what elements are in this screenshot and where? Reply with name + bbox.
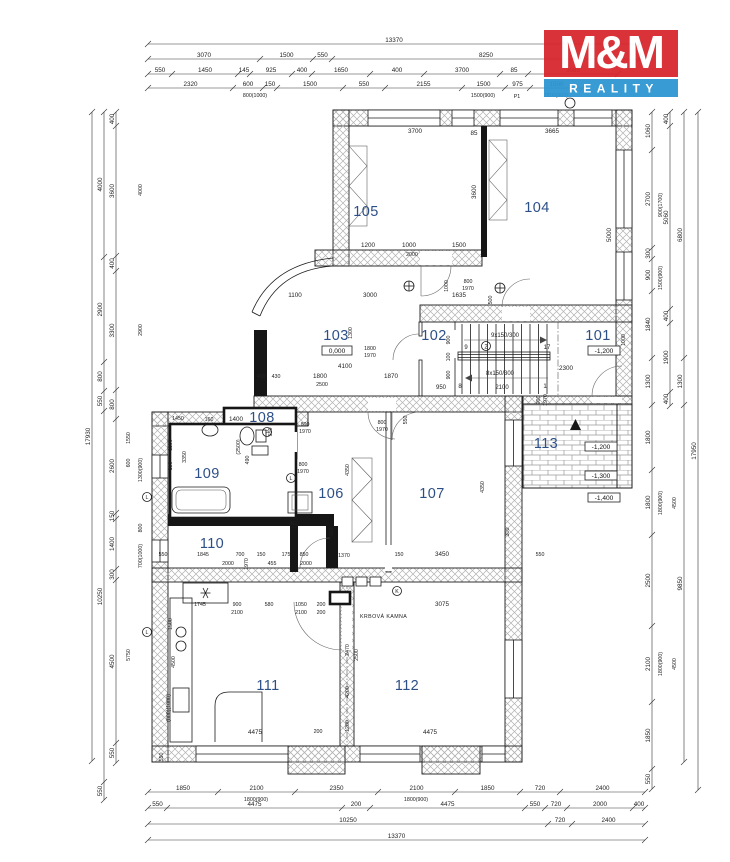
- marker-k: K: [395, 589, 399, 595]
- elevation-0000: 0,000: [329, 348, 346, 355]
- dim-chain-bottom-3: 102507202400: [145, 817, 648, 827]
- interior-dim: 4200: [345, 686, 351, 698]
- dim-label: 2900: [97, 302, 104, 317]
- interior-dim: 1970: [543, 394, 549, 406]
- door-gap: [385, 545, 392, 571]
- wardrobe-icon: [352, 458, 372, 542]
- dim-label: 1840: [645, 317, 652, 332]
- dim-sub-label: 1300(900): [138, 458, 144, 482]
- dim-label: 550: [109, 747, 116, 758]
- interior-dim: 455: [268, 561, 277, 567]
- dim-label: 400: [663, 113, 670, 124]
- interior-dim: 4350: [345, 464, 351, 476]
- interior-dim: 700: [236, 552, 245, 558]
- room-label-103: 103: [323, 328, 348, 344]
- interior-dim: 150: [257, 552, 266, 558]
- dim-label: 2400: [595, 785, 610, 792]
- interior-dim: 1970: [297, 469, 309, 475]
- interior-dim: 5000: [606, 228, 613, 243]
- dim-label: 2600: [109, 459, 116, 474]
- dim-label: 1400: [109, 537, 116, 552]
- dim-label: 1800: [645, 495, 652, 510]
- interior-dim: 100: [446, 353, 452, 362]
- kitchen-sink-icon: [173, 688, 189, 712]
- interior-dim: 550: [268, 428, 274, 437]
- interior-dim: 1970: [462, 286, 474, 292]
- dim-label: 10250: [97, 587, 104, 605]
- interior-dim: 1800: [364, 346, 376, 352]
- interior-dim: 1970: [364, 353, 376, 359]
- benchmark-icon: [495, 283, 505, 293]
- dim-label: 17930: [85, 427, 92, 445]
- interior-dim: 550: [403, 416, 409, 425]
- dim-label: 1300: [645, 374, 652, 389]
- dim-label: 1850: [645, 728, 652, 743]
- interior-dim: 1100: [168, 439, 174, 450]
- dim-sub-label: 700(1000): [138, 544, 144, 568]
- interior-dim: 4475: [248, 729, 263, 736]
- interior-dim: 2300: [559, 365, 574, 372]
- dim-label: 1060: [645, 124, 652, 139]
- stair-width2: 950: [436, 385, 447, 391]
- interior-dim: (800)(1000): [166, 694, 172, 722]
- elevation-1200b: -1,200: [592, 444, 611, 451]
- dim-label: 10250: [339, 817, 357, 824]
- room-label-104: 104: [524, 200, 549, 216]
- room-label-102: 102: [421, 328, 446, 344]
- marker-k2: K2: [291, 521, 297, 527]
- dim-label: 550: [152, 801, 163, 808]
- dim-label: 13370: [388, 833, 406, 840]
- interior-dim: 160: [205, 417, 214, 423]
- stair-run-down: 8x150/300: [486, 371, 515, 377]
- interior-dim: 800: [301, 422, 310, 428]
- dim-sub-label: 1500(900): [471, 93, 495, 99]
- room-label-111: 111: [256, 678, 279, 694]
- interior-dim: 3600: [471, 185, 478, 200]
- interior-dim: 400: [257, 374, 266, 380]
- interior-dim: 800: [464, 279, 473, 285]
- interior-dim: 300: [505, 528, 511, 537]
- dim-label: 720: [535, 785, 546, 792]
- elevation-1300: -1,300: [592, 473, 611, 480]
- dim-label: 1500: [303, 81, 318, 88]
- dim-label: 550: [317, 52, 328, 59]
- interior-dim: 1800: [313, 373, 328, 380]
- dim-label: 720: [551, 801, 562, 808]
- marker-l1: L: [146, 495, 149, 501]
- interior-dim: 1370: [338, 553, 350, 559]
- dim-label: 1850: [480, 785, 495, 792]
- interior-dim: 900: [446, 336, 452, 345]
- dim-label: 400: [663, 310, 670, 321]
- dim-sub-label: 600: [126, 459, 132, 468]
- dim-label: 85: [510, 67, 518, 74]
- interior-dim: 3075: [435, 601, 450, 608]
- interior-dim: 4475: [423, 729, 438, 736]
- interior-dim: 2500: [354, 649, 360, 661]
- dim-label: 2700: [645, 192, 652, 207]
- interior-dim: 1000: [444, 280, 450, 292]
- interior-dim: 1200: [345, 720, 351, 732]
- dim-sub-label: 1800(900): [244, 797, 268, 803]
- marker-l2: L: [146, 630, 149, 636]
- dim-sub-label: 1800(900): [404, 797, 428, 803]
- dim-label: 17950: [691, 442, 698, 460]
- dim-label: 13370: [385, 37, 403, 44]
- interior-dim: 2000: [222, 561, 234, 567]
- interior-dim: 150: [168, 462, 174, 471]
- dim-label: 550: [97, 785, 104, 796]
- interior-dim: 85: [470, 130, 478, 137]
- dim-sub-label: 800(1000): [243, 93, 267, 99]
- logo-subtitle: REALITY: [569, 82, 659, 96]
- dim-label: 4000: [97, 177, 104, 192]
- interior-dim: 1000: [402, 242, 417, 249]
- dim-label: 800: [109, 399, 116, 410]
- interior-dim: (2500): [236, 439, 242, 455]
- dim-label: 1500: [279, 52, 294, 59]
- interior-dim: 1000: [621, 334, 627, 346]
- dim-label: 2500: [645, 573, 652, 588]
- interior-dim: 430: [272, 374, 281, 380]
- dim-label: 400: [109, 258, 116, 269]
- dim-label: 150: [109, 510, 116, 521]
- room-label-110: 110: [200, 536, 224, 552]
- dim-label: 1900: [663, 350, 670, 365]
- interior-dim: 800: [299, 462, 308, 468]
- dim-label: 1450: [198, 67, 213, 74]
- dim-label: 2350: [329, 785, 344, 792]
- dim-label: 3700: [455, 67, 470, 74]
- dim-label: 2100: [409, 785, 424, 792]
- dim-label: 1850: [176, 785, 191, 792]
- interior-dim: 4500: [171, 656, 177, 668]
- interior-dim: 2500: [316, 382, 328, 388]
- interior-dim: 500: [488, 296, 494, 305]
- dim-label: 6800: [677, 228, 684, 243]
- dim-label: 4475: [440, 801, 455, 808]
- dim-label: 3070: [197, 52, 212, 59]
- interior-dim: 1450: [172, 416, 184, 422]
- room-label-105: 105: [353, 204, 378, 220]
- dim-label: 1650: [334, 67, 349, 74]
- fireplace-stove: [330, 592, 350, 604]
- dim-label: 600: [243, 81, 254, 88]
- elevation-1200: -1,200: [595, 348, 614, 355]
- dim-label: 150: [265, 81, 276, 88]
- dim-sub-label: 4500: [672, 658, 678, 670]
- interior-dim: 4100: [338, 363, 353, 370]
- interior-dim: 2100: [295, 610, 307, 616]
- dim-sub-label: P1: [514, 94, 521, 100]
- interior-dim: 1050: [295, 602, 307, 608]
- dim-label: 925: [266, 67, 277, 74]
- interior-dim: 1970: [244, 558, 250, 570]
- interior-dim: 1845: [197, 552, 209, 558]
- interior-dim: 2470: [345, 644, 351, 656]
- dim-sub-label: 1550: [126, 432, 132, 444]
- interior-dim: 800: [378, 420, 387, 426]
- interior-dim: 3700: [408, 128, 423, 135]
- benchmark-icon: [404, 281, 414, 291]
- interior-dim: 3350: [182, 451, 188, 463]
- interior-dim: 580: [265, 602, 274, 608]
- dim-label: 550: [359, 81, 370, 88]
- dim-label: 3300: [109, 323, 116, 338]
- stair-run-up: 9x150/300: [491, 333, 520, 339]
- dim-label: 2100: [249, 785, 264, 792]
- room-label-112: 112: [395, 678, 419, 694]
- floor-plan: 13370 307015005508250 550145014592540016…: [0, 0, 730, 862]
- bay-window: [252, 258, 333, 316]
- dim-chain-top-4: 23206001501500550215515009751500: [145, 81, 586, 91]
- interior-dim: 2000: [406, 252, 418, 258]
- dim-label: 2000: [593, 801, 608, 808]
- dim-sub-label: 4500: [672, 497, 678, 509]
- dim-sub-label: 1500(900): [658, 266, 664, 290]
- dim-label: 2400: [601, 817, 616, 824]
- dim-chain-right-3: 680013009850: [677, 109, 687, 765]
- interior-dim: 1635: [452, 292, 467, 299]
- dim-label: 550: [645, 773, 652, 784]
- elevation-1400: -1,400: [595, 495, 614, 502]
- dim-label: 550: [97, 395, 104, 406]
- staircase: 2 9x150/300 8x150/300 9 17 8 1 2100 950: [436, 324, 551, 394]
- dim-label: 4500: [109, 654, 116, 669]
- dim-chain-right-4: 17950: [691, 109, 701, 793]
- interior-dim: 550: [536, 552, 545, 558]
- dim-chain-right-1: 1060270030090018401300180018002500210018…: [645, 109, 655, 792]
- dim-label: 300: [645, 248, 652, 259]
- interior-dim: 3665: [545, 128, 560, 135]
- dim-label: 3600: [109, 184, 116, 199]
- dim-label: 550: [155, 67, 166, 74]
- dim-chain-right-2: 40050604001900400: [663, 109, 673, 409]
- dim-label: 400: [392, 67, 403, 74]
- dim-chain-left-2: 4000290080055010250550: [97, 109, 107, 803]
- stair-step-start: 9: [464, 345, 468, 351]
- dim-label: 975: [512, 81, 523, 88]
- dim-label: 2320: [183, 81, 198, 88]
- interior-dim: 1500: [452, 242, 467, 249]
- interior-dim: 2000: [300, 561, 312, 567]
- interior-dim: 1100: [288, 292, 302, 299]
- interior-dim: 1200: [361, 242, 376, 249]
- dim-label: 400: [109, 113, 116, 124]
- fireplace-label: KRBOVÁ KAMNA: [360, 613, 407, 620]
- dim-label: 400: [634, 801, 645, 808]
- dim-sub-label: 1800(900): [658, 491, 664, 515]
- room-label-107: 107: [419, 486, 444, 502]
- dim-label: 1800: [645, 430, 652, 445]
- interior-dim: 1300: [348, 327, 354, 339]
- interior-dim: 3000: [363, 292, 378, 299]
- dim-label: 400: [663, 393, 670, 404]
- dim-label: 145: [239, 67, 250, 74]
- dim-label: 9850: [677, 576, 684, 591]
- dim-chain-bottom-1: 185021002350210018507202400: [145, 785, 648, 795]
- interior-dim: 3450: [435, 551, 450, 558]
- stair-width: 2100: [495, 385, 509, 391]
- stove-icon: [176, 627, 186, 637]
- interior-dim: 1500: [168, 618, 174, 630]
- interior-dim: 300: [329, 528, 335, 537]
- dim-label: 300: [109, 569, 116, 580]
- room-label-109: 109: [194, 466, 219, 482]
- dim-label: 1300: [677, 374, 684, 389]
- dim-sub-label: 800: [138, 524, 144, 533]
- logo-title: M&M: [559, 26, 663, 78]
- interior-dim: 550: [159, 552, 168, 558]
- dim-label: 200: [351, 801, 362, 808]
- room-label-108: 108: [249, 410, 274, 426]
- interior-dim: 1970: [299, 429, 311, 435]
- interior-dim: 4350: [480, 481, 486, 493]
- dim-label: 400: [297, 67, 308, 74]
- interior-dim: 200: [317, 610, 326, 616]
- interior-dim: 900: [446, 371, 452, 380]
- interior-dim: 850: [300, 552, 309, 558]
- interior-dim: 1400: [229, 416, 244, 423]
- interior-dim: 1745: [194, 602, 206, 608]
- interior-dim: 900: [233, 602, 242, 608]
- dim-chain-left-1: 17930: [85, 109, 95, 764]
- interior-dim: 200: [314, 729, 323, 735]
- marker-lr: L: [290, 476, 293, 482]
- dim-chain-bottom-4: 13370: [145, 833, 648, 843]
- interior-dim: 550: [159, 753, 165, 762]
- dim-label: 800: [97, 371, 104, 382]
- dim-sub-label: 900(1700): [658, 193, 664, 217]
- dim-sub-label: 5750: [126, 649, 132, 661]
- dim-label: 900: [645, 269, 652, 280]
- dim-sub-label: 4000: [138, 184, 144, 196]
- interior-dim: 900: [536, 396, 542, 405]
- stair-step-end: 17: [544, 345, 551, 351]
- room-label-101: 101: [585, 328, 610, 344]
- logo: M&M REALITY: [544, 26, 678, 97]
- dim-sub-label: 1800(900): [658, 652, 664, 676]
- interior-dim: 1870: [384, 373, 399, 380]
- interior-dim: 490: [245, 456, 251, 465]
- dim-label: 8250: [479, 52, 494, 59]
- dim-sub-label: 2900: [138, 324, 144, 336]
- interior-dim: 1970: [376, 427, 388, 433]
- dim-label: 5060: [663, 210, 670, 225]
- dim-chain-left-3: 40036004003300800260015014003004500550: [109, 109, 119, 766]
- dim-label: 2100: [645, 657, 652, 672]
- column-marker: [565, 98, 575, 108]
- interior-dim: 150: [395, 552, 404, 558]
- room-label-106: 106: [318, 486, 343, 502]
- dim-label: 550: [530, 801, 541, 808]
- wardrobe-icon: [489, 140, 507, 220]
- room-label-113: 113: [534, 436, 558, 452]
- dim-label: 1500: [476, 81, 491, 88]
- interior-dim: 200: [317, 602, 326, 608]
- dim-chain-bottom-2: 550447520044755507202000400: [145, 801, 648, 811]
- dim-label: 720: [555, 817, 566, 824]
- interior-dim: 2100: [231, 610, 243, 616]
- dim-label: 2155: [416, 81, 431, 88]
- interior-dim: 175: [282, 552, 291, 558]
